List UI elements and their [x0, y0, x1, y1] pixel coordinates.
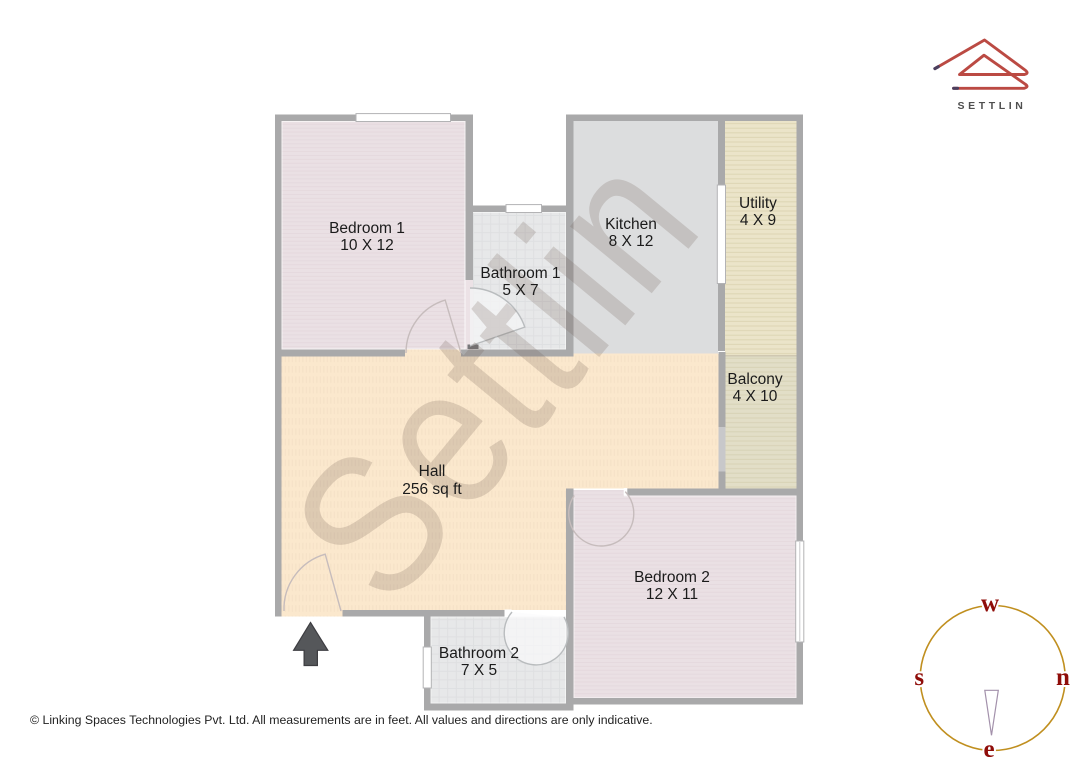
svg-text:4 X 9: 4 X 9	[740, 212, 776, 229]
svg-text:12 X 11: 12 X 11	[646, 586, 698, 603]
svg-text:7 X 5: 7 X 5	[461, 662, 497, 679]
svg-text:e: e	[984, 736, 995, 763]
svg-text:Bedroom 1: Bedroom 1	[329, 220, 405, 237]
svg-text:s: s	[914, 664, 924, 691]
svg-text:Bathroom 2: Bathroom 2	[439, 645, 519, 662]
svg-text:w: w	[981, 590, 999, 617]
svg-text:256 sq ft: 256 sq ft	[402, 481, 462, 498]
svg-text:Hall: Hall	[419, 463, 446, 480]
svg-text:10 X 12: 10 X 12	[340, 237, 393, 254]
svg-text:4 X 10: 4 X 10	[733, 388, 778, 405]
svg-text:5 X 7: 5 X 7	[502, 282, 538, 299]
svg-text:© Linking Spaces Technologies: © Linking Spaces Technologies Pvt. Ltd. …	[30, 713, 653, 727]
svg-text:Bedroom 2: Bedroom 2	[634, 569, 710, 586]
svg-text:SETTLIN: SETTLIN	[958, 100, 1027, 112]
svg-text:Utility: Utility	[739, 195, 777, 212]
svg-text:Kitchen: Kitchen	[605, 216, 657, 233]
svg-text:n: n	[1056, 664, 1070, 691]
svg-text:Bathroom 1: Bathroom 1	[480, 265, 560, 282]
svg-text:8 X 12: 8 X 12	[609, 233, 654, 250]
svg-text:Balcony: Balcony	[727, 371, 782, 388]
